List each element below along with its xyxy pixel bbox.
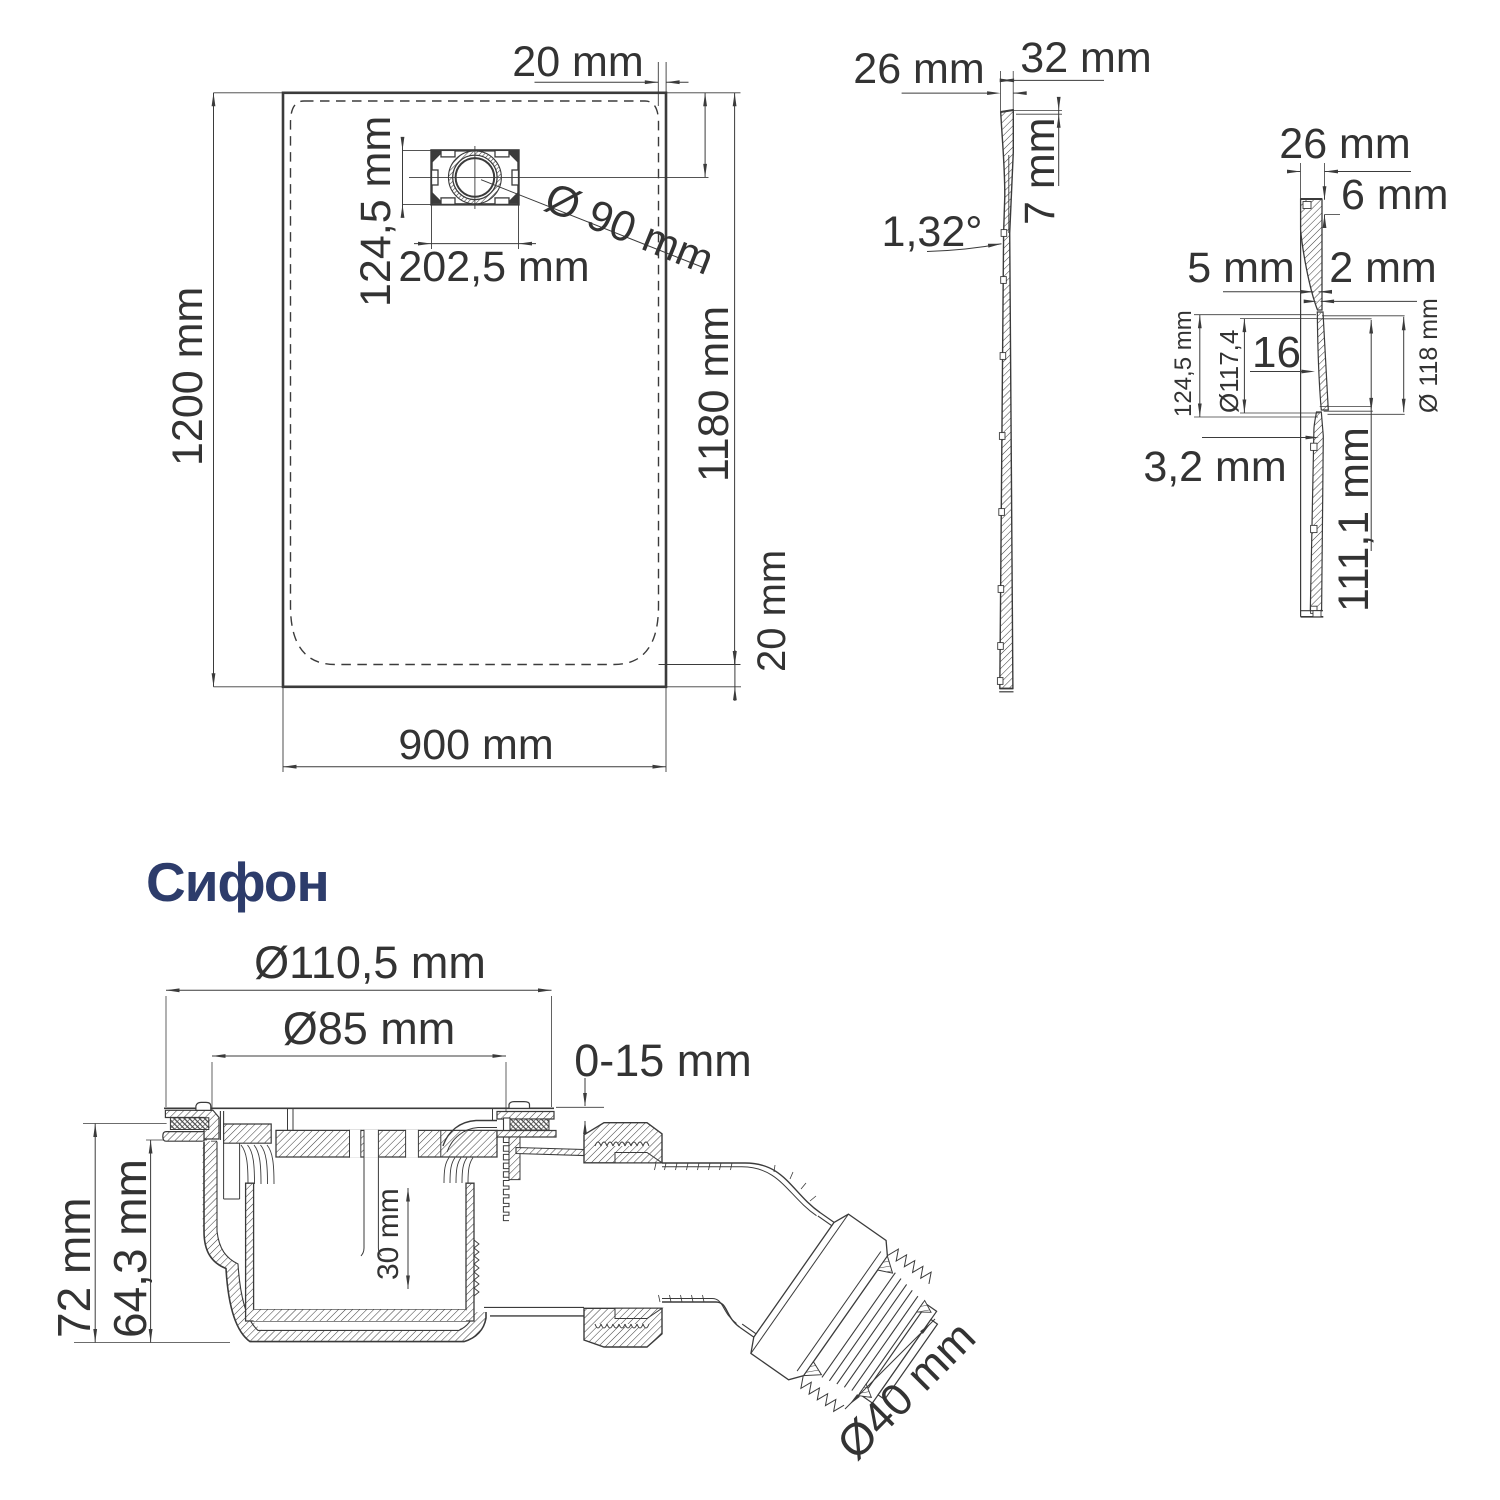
svg-text:6 mm: 6 mm (1341, 171, 1449, 219)
svg-text:26 mm: 26 mm (853, 45, 984, 93)
svg-text:Ø117,4: Ø117,4 (1214, 330, 1244, 413)
svg-text:Ø85 mm: Ø85 mm (283, 1003, 456, 1054)
svg-text:30 mm: 30 mm (372, 1188, 405, 1280)
svg-text:0-15 mm: 0-15 mm (574, 1035, 752, 1086)
svg-text:16: 16 (1252, 328, 1301, 377)
svg-text:1,32°: 1,32° (882, 208, 983, 256)
svg-text:111,1 mm: 111,1 mm (1330, 427, 1378, 612)
svg-text:32 mm: 32 mm (1020, 34, 1151, 82)
svg-text:124,5 mm: 124,5 mm (1170, 310, 1197, 417)
svg-text:26 mm: 26 mm (1279, 120, 1410, 168)
svg-text:3,2 mm: 3,2 mm (1143, 443, 1286, 491)
svg-text:72 mm: 72 mm (48, 1197, 100, 1338)
svg-text:5 mm: 5 mm (1187, 244, 1295, 292)
svg-text:7 mm: 7 mm (1016, 118, 1064, 226)
svg-text:Ø110,5 mm: Ø110,5 mm (254, 937, 486, 988)
svg-text:Сифон: Сифон (146, 851, 329, 913)
svg-text:1200 mm: 1200 mm (164, 287, 212, 466)
svg-text:Ø 118 mm: Ø 118 mm (1415, 298, 1443, 413)
svg-text:124,5 mm: 124,5 mm (352, 116, 400, 307)
svg-text:20 mm: 20 mm (512, 38, 643, 86)
svg-text:20 mm: 20 mm (750, 550, 794, 672)
svg-text:900 mm: 900 mm (398, 721, 553, 769)
svg-text:2 mm: 2 mm (1329, 244, 1437, 292)
svg-text:202,5 mm: 202,5 mm (398, 243, 589, 291)
svg-text:1180 mm: 1180 mm (690, 306, 738, 482)
svg-text:64,3 mm: 64,3 mm (104, 1159, 156, 1338)
